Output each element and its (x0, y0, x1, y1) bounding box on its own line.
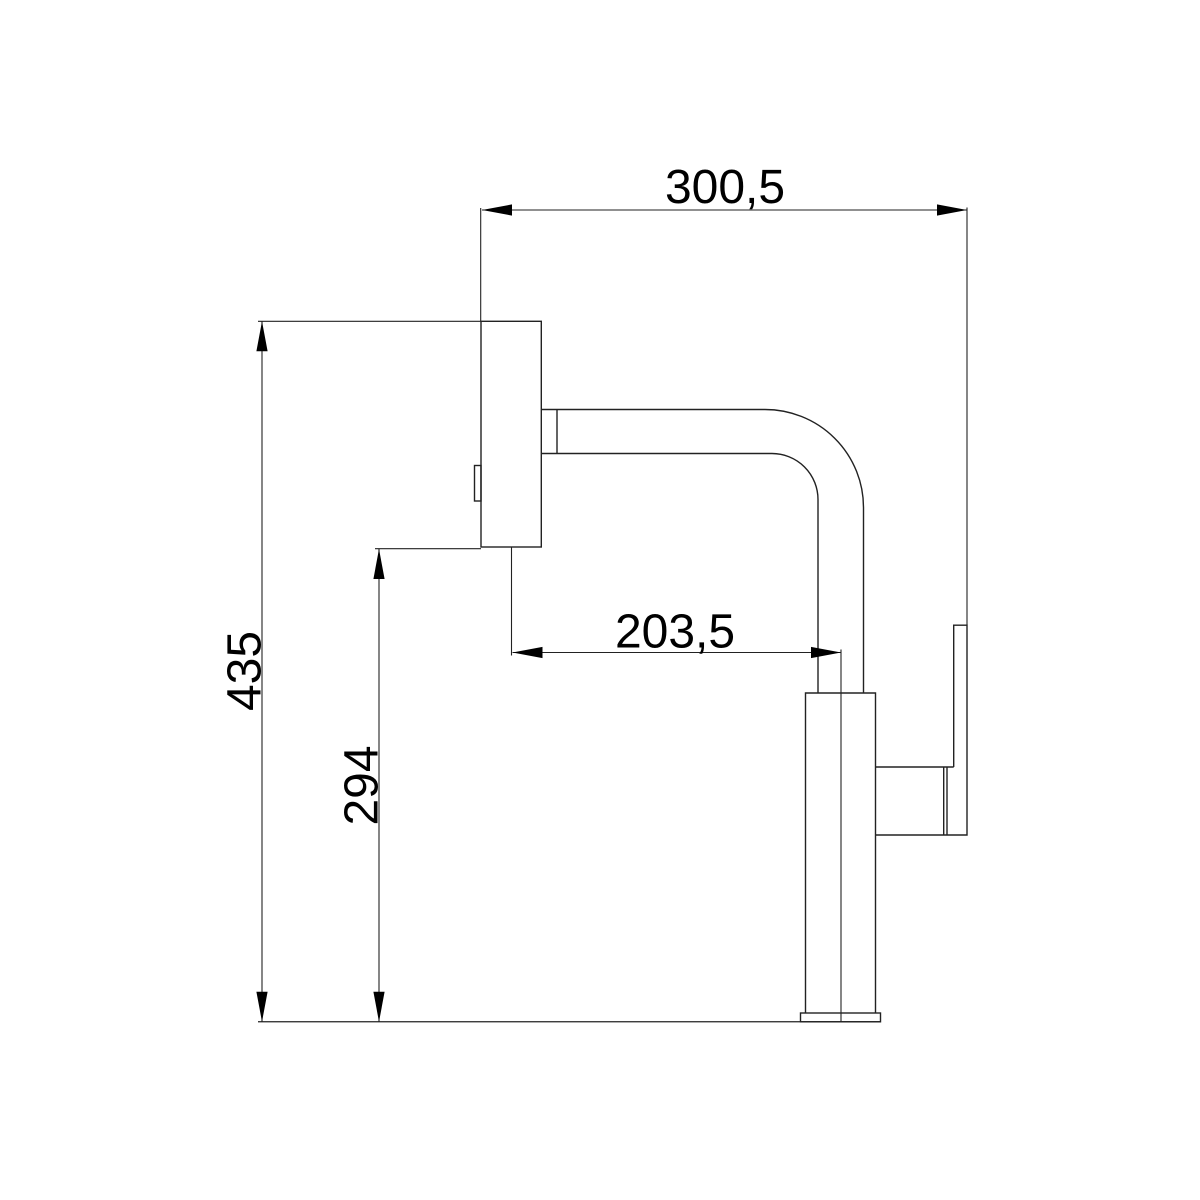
svg-text:203,5: 203,5 (615, 606, 735, 659)
svg-text:300,5: 300,5 (665, 161, 785, 214)
svg-text:294: 294 (336, 745, 389, 825)
svg-text:435: 435 (219, 631, 272, 711)
